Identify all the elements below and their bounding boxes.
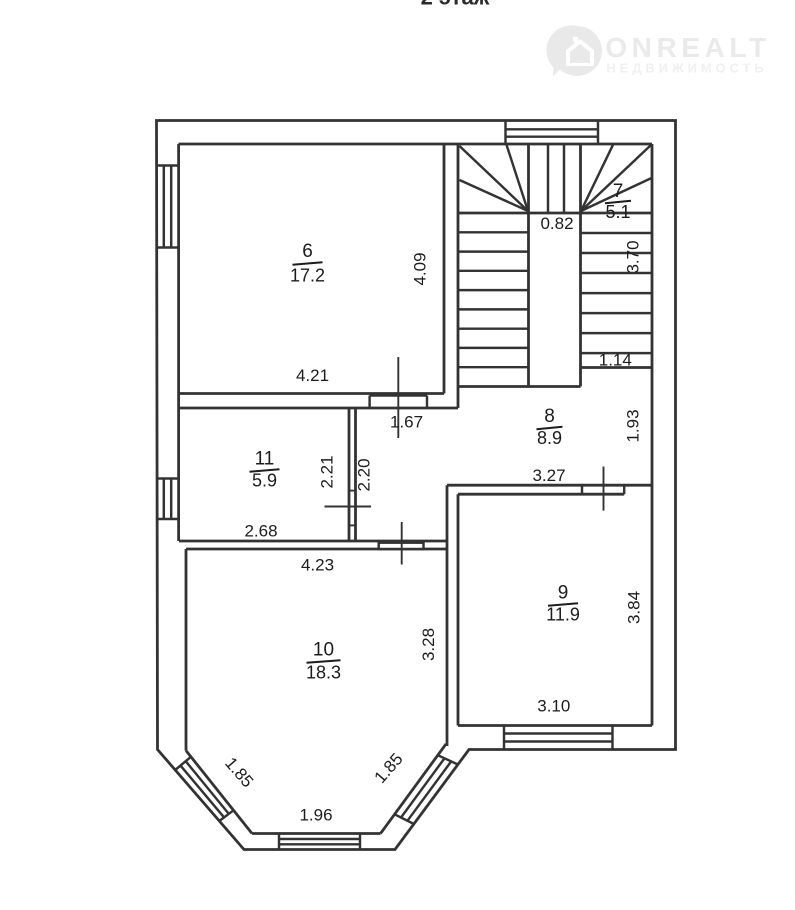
svg-text:1.67: 1.67: [390, 413, 423, 432]
svg-text:3.28: 3.28: [419, 628, 438, 661]
svg-text:11: 11: [255, 449, 275, 470]
svg-text:7: 7: [613, 181, 624, 202]
svg-text:17.2: 17.2: [290, 266, 325, 286]
svg-text:3.10: 3.10: [537, 697, 570, 716]
svg-text:3.70: 3.70: [624, 240, 643, 273]
svg-text:0.82: 0.82: [540, 214, 573, 233]
svg-text:2.68: 2.68: [244, 522, 277, 541]
svg-text:1.96: 1.96: [299, 806, 332, 825]
svg-text:4.23: 4.23: [301, 556, 334, 575]
svg-text:5.9: 5.9: [252, 471, 277, 491]
svg-text:5.1: 5.1: [605, 202, 630, 222]
svg-text:11.9: 11.9: [546, 605, 580, 625]
svg-text:3.27: 3.27: [532, 466, 565, 485]
svg-text:ONREALT: ONREALT: [605, 32, 770, 63]
svg-text:9: 9: [558, 583, 569, 604]
svg-text:НЕДВИЖИМОСТЬ: НЕДВИЖИМОСТЬ: [606, 61, 767, 76]
svg-text:4.09: 4.09: [411, 252, 430, 285]
svg-text:2.20: 2.20: [355, 458, 374, 491]
svg-text:2 этаж: 2 этаж: [421, 0, 490, 10]
svg-text:4.21: 4.21: [296, 366, 329, 385]
svg-text:6: 6: [302, 241, 313, 262]
svg-text:3.84: 3.84: [625, 591, 644, 624]
svg-text:1.93: 1.93: [624, 409, 643, 442]
svg-text:8: 8: [544, 406, 555, 427]
svg-text:10: 10: [313, 640, 334, 661]
svg-text:2.21: 2.21: [318, 455, 337, 488]
svg-text:8.9: 8.9: [537, 428, 562, 448]
svg-text:18.3: 18.3: [306, 663, 341, 683]
svg-text:1.14: 1.14: [599, 351, 632, 370]
